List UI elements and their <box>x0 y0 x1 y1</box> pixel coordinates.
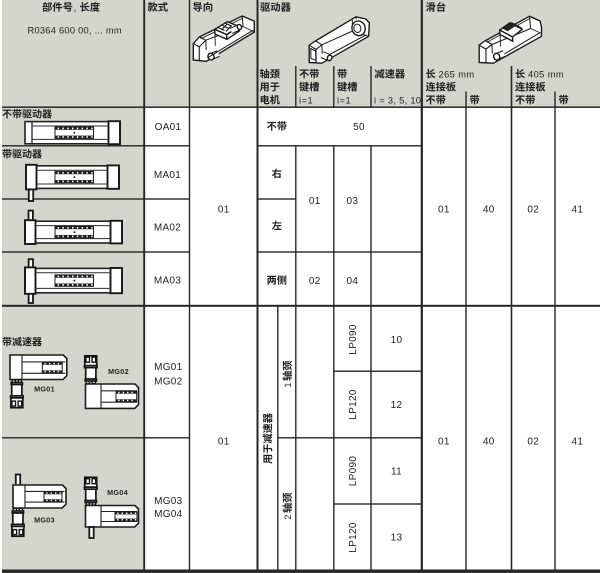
svg-text:2: 2 <box>283 515 293 520</box>
svg-text:04: 04 <box>347 276 359 287</box>
svg-text:OA01: OA01 <box>155 122 182 133</box>
svg-text:41: 41 <box>572 204 584 215</box>
svg-text:03: 03 <box>347 196 359 207</box>
svg-text:02: 02 <box>309 276 321 287</box>
svg-text:MG02: MG02 <box>154 376 183 387</box>
svg-text:02: 02 <box>527 204 539 215</box>
svg-text:40: 40 <box>483 204 495 215</box>
svg-text:50: 50 <box>353 122 365 133</box>
svg-text:02: 02 <box>527 437 539 448</box>
svg-text:01: 01 <box>218 437 230 448</box>
svg-text:405 mm: 405 mm <box>528 70 564 80</box>
svg-text:1: 1 <box>283 383 293 388</box>
svg-text:MG01: MG01 <box>34 385 55 394</box>
svg-text:MG03: MG03 <box>34 515 55 524</box>
svg-text:MA02: MA02 <box>154 222 181 233</box>
svg-text:i=1: i=1 <box>337 96 351 106</box>
svg-text:LP120: LP120 <box>348 389 359 420</box>
svg-text:01: 01 <box>438 437 450 448</box>
svg-text:265 mm: 265 mm <box>439 70 475 80</box>
svg-text:01: 01 <box>218 204 230 215</box>
svg-text:13: 13 <box>391 533 403 544</box>
svg-text:i=1: i=1 <box>299 96 313 106</box>
svg-text:01: 01 <box>309 196 321 207</box>
svg-text:40: 40 <box>483 437 495 448</box>
svg-text:MG02: MG02 <box>108 367 129 376</box>
svg-text:12: 12 <box>391 400 403 411</box>
svg-text:MA01: MA01 <box>154 170 181 181</box>
svg-text:i = 3, 5, 10: i = 3, 5, 10 <box>374 96 421 106</box>
svg-text:LP090: LP090 <box>348 324 359 355</box>
svg-text:,: , <box>74 3 77 14</box>
svg-text:MG04: MG04 <box>154 509 183 520</box>
svg-text:41: 41 <box>572 437 584 448</box>
svg-text:11: 11 <box>391 467 402 478</box>
svg-text:01: 01 <box>438 204 450 215</box>
svg-text:LP120: LP120 <box>348 522 359 553</box>
svg-text:MG03: MG03 <box>154 496 183 507</box>
svg-text:R0364 600 00, ... mm: R0364 600 00, ... mm <box>28 26 122 36</box>
svg-text:10: 10 <box>391 335 403 346</box>
svg-text:LP090: LP090 <box>348 456 359 487</box>
svg-text:MA03: MA03 <box>154 276 181 287</box>
svg-text:MG04: MG04 <box>107 488 128 497</box>
svg-text:MG01: MG01 <box>154 362 183 373</box>
